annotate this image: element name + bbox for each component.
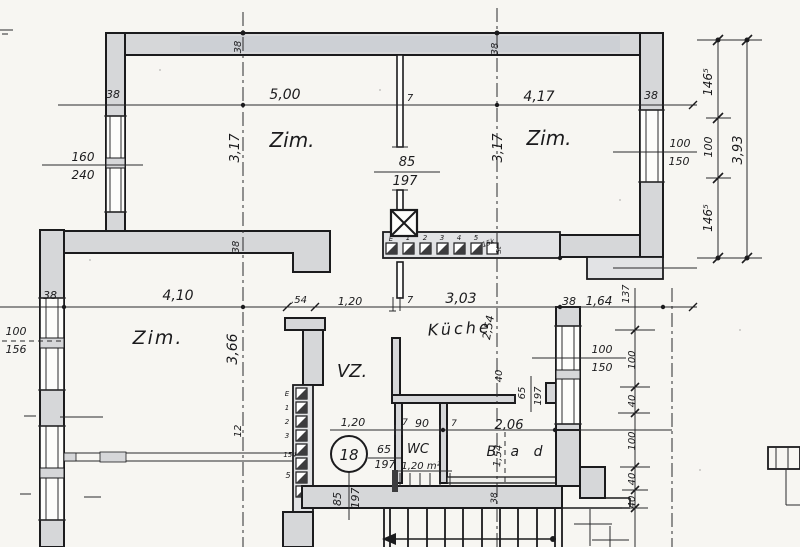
chain-146-5-bottom: 146⁵ — [701, 204, 715, 232]
door-197-top: 197 — [393, 174, 419, 189]
room-zimmer-top-right: Zim. — [525, 126, 571, 150]
dim-4-17: 4,17 — [523, 89, 554, 105]
dim-54: ,54 — [291, 295, 307, 306]
dim-38-mid-left: 38 — [43, 289, 57, 302]
chain-3-93: 3,93 — [731, 136, 746, 165]
room-vz: VZ. — [337, 361, 367, 382]
win-150-tr: 150 — [669, 155, 690, 168]
survey-cross-marks — [574, 509, 629, 547]
unit-number-circle: 18 — [331, 436, 367, 472]
door-197-entry: 197 — [349, 488, 362, 509]
dim-137: 137 — [621, 284, 632, 304]
chain-100-b: 100 — [627, 431, 638, 450]
closet-h-st: St — [495, 246, 503, 253]
dim-7-top: 7 — [407, 93, 414, 104]
wall-vz-upper — [303, 330, 323, 385]
closet-h-1: 1 — [406, 234, 410, 242]
room-wc: WC — [407, 442, 430, 457]
window-100x150-mid — [554, 326, 582, 424]
door-jamb-vz — [389, 297, 400, 311]
wall-fragment-bottom-right — [768, 447, 800, 505]
win-100-left: 100 — [6, 325, 27, 338]
closet-h-4: 4 — [457, 234, 461, 242]
win-240: 240 — [72, 168, 95, 182]
dim-38-mid-right: 38 — [562, 295, 576, 308]
partition-stub — [397, 190, 403, 210]
dim-2-06: 2,06 — [495, 418, 524, 433]
chain-40-b: 40 — [627, 473, 638, 486]
closet-v-1: 1 — [285, 404, 289, 412]
win-100-mr: 100 — [592, 343, 613, 356]
flue-box — [391, 210, 417, 236]
dim-5-00: 5,00 — [269, 87, 300, 103]
closet-h-3: 3 — [440, 234, 444, 242]
dim-7-mid: 7 — [407, 295, 414, 306]
wall-right-step — [562, 498, 630, 508]
dim-1-64: 1,64 — [586, 294, 613, 308]
closet-h-5: 5 — [474, 234, 479, 242]
dim-38-wall-right: 38 — [644, 89, 658, 102]
closet-v-154: 154 — [283, 451, 296, 459]
door-65-wc: 65 — [377, 443, 391, 456]
stair-treads — [384, 508, 562, 547]
floor-plan-drawing: 18 Zim.Zim.Zim.KücheVZ.WC1,20 m²B a d385… — [0, 0, 800, 547]
win-156-left: 156 — [6, 343, 27, 356]
closet-h-E: E — [389, 235, 394, 243]
wall-mid-band-left — [42, 231, 330, 272]
chain-100-a: 100 — [627, 350, 638, 369]
dim-38-stair: 38 — [490, 492, 500, 504]
wc-area: 1,20 m² — [401, 461, 440, 472]
dim-3-17-right: 3,17 — [491, 133, 506, 163]
wall-vz-cap — [285, 318, 325, 330]
closet-v-2: 2 — [285, 418, 290, 426]
door-197-kueche: 197 — [533, 386, 544, 406]
dim-7-wc-b: 7 — [451, 419, 457, 429]
dim-90-wc: 90 — [415, 417, 429, 430]
floor-plan-page: 18 Zim.Zim.Zim.KücheVZ.WC1,20 m²B a d385… — [0, 0, 800, 547]
dim-4-10: 4,10 — [162, 288, 193, 304]
window-160x240 — [104, 116, 127, 212]
window-left-lower-2 — [38, 426, 66, 520]
win-100-tr: 100 — [670, 137, 691, 150]
partition-below-band — [397, 262, 403, 298]
chain-40-a: 40 — [627, 395, 638, 408]
wall-vz-foot — [283, 512, 313, 547]
door-65-kueche: 65 — [517, 387, 528, 400]
scan-smudge — [180, 36, 620, 52]
wall-bad-south — [447, 477, 556, 483]
chain-40-c: 40 — [627, 496, 638, 509]
door-85-entry: 85 — [331, 492, 344, 506]
dim-1-20-wc: 1,20 — [341, 416, 366, 429]
dim-38-topwall-2: 38 — [490, 43, 501, 56]
door-197-wc: 197 — [375, 458, 396, 471]
unit-number-text: 18 — [339, 446, 358, 464]
wall-right-jog — [580, 467, 605, 498]
door-85-top: 85 — [399, 155, 416, 170]
win-160: 160 — [72, 150, 95, 164]
closet-v-E: E — [285, 390, 290, 398]
wall-mid-band-right — [560, 235, 640, 257]
dim-40-stub: 40 — [494, 370, 505, 383]
dim-1-20-mid: 1,20 — [338, 295, 363, 308]
wall-right-lower — [556, 430, 580, 486]
win-150-mr: 150 — [592, 361, 613, 374]
dim-12: 12 — [233, 425, 244, 438]
dim-3-03: 3,03 — [445, 291, 476, 307]
dim-38-wall-left: 38 — [106, 88, 120, 101]
closet-h-2: 2 — [423, 234, 428, 242]
dim-7-wc-a: 7 — [402, 418, 408, 428]
dim-1-54: 1,54 — [492, 444, 505, 467]
window-100x156 — [38, 298, 66, 390]
room-zimmer-top-left: Zim. — [268, 128, 314, 152]
closet-v-3: 3 — [285, 432, 289, 440]
room-zimmer-mid-left: Zim. — [132, 327, 184, 349]
dim-3-17-left: 3,17 — [228, 133, 243, 163]
dim-2-54: 2,54 — [480, 314, 497, 340]
chain-146-5-top: 146⁵ — [701, 68, 715, 96]
window-100x150-top — [638, 110, 665, 182]
closet-v-5: 5 — [285, 471, 290, 480]
partition-top — [397, 55, 403, 147]
dim-38-topwall-1: 38 — [233, 41, 244, 54]
dim-38-band-left: 38 — [231, 241, 242, 254]
stair-start-dot — [550, 536, 556, 542]
wall-kueche-west — [392, 338, 400, 400]
wall-interior-thin — [64, 452, 293, 462]
chain-100-right: 100 — [702, 137, 715, 158]
dim-3-66: 3,66 — [225, 333, 241, 364]
